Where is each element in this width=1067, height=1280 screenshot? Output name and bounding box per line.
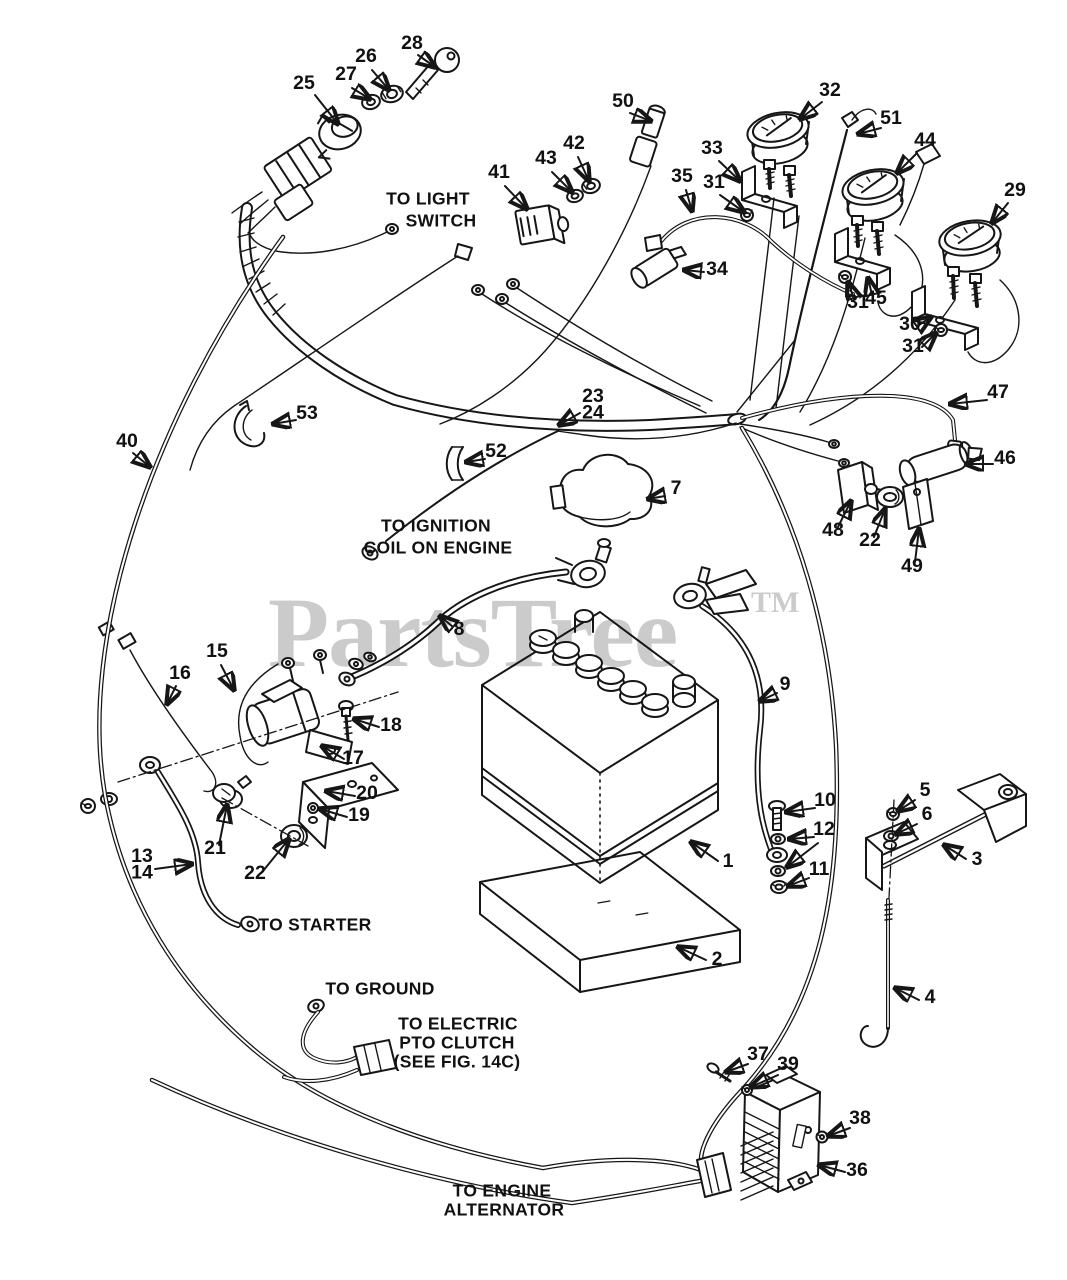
callout-number-19: 19 [348,804,370,826]
callout-arrow-4 [895,988,919,1000]
callout-number-28: 28 [401,32,423,54]
callout-37: 37 [726,1043,769,1072]
callout-number-13-14: 1314 [131,845,153,884]
callout-22b: 22 [244,839,289,884]
callout-number-23-24: 2324 [582,385,604,424]
callout-arrow-44 [897,153,917,173]
callout-3: 3 [944,845,983,870]
callout-number-15: 15 [206,640,228,662]
callout-number-29: 29 [1004,179,1026,201]
callout-9: 9 [760,673,791,701]
callout-number-25: 25 [293,72,315,94]
callout-30: 30 [899,313,931,335]
callout-arrow-36 [819,1165,845,1172]
callout-number-8: 8 [454,618,465,640]
callout-arrow-32 [800,102,822,119]
callout-32: 32 [800,79,841,119]
callout-19: 19 [320,804,370,826]
callout-arrow-1 [691,842,718,861]
callout-arrow-31c [922,333,936,347]
callout-number-39: 39 [777,1053,799,1075]
callout-52: 52 [466,440,507,462]
callout-arrow-27 [352,88,370,99]
callout-48: 48 [822,501,851,541]
callout-26: 26 [355,45,389,90]
callout-31a: 31 [703,171,744,212]
annotation-to-electric-pto-clutch-line-1: TO ELECTRIC [398,1013,518,1034]
callout-number-6: 6 [922,803,933,825]
annotation-to-engine-alternator-line-2: ALTERNATOR [444,1199,565,1220]
callout-arrow-53 [273,420,296,424]
callout-number-52: 52 [485,440,507,462]
callout-number-31a: 31 [703,171,725,193]
callout-number-34: 34 [706,258,728,280]
callout-number-20: 20 [356,782,378,804]
callout-arrow-42 [578,157,589,181]
callout-arrow-40 [133,453,150,467]
callout-number-17: 17 [342,747,364,769]
annotation-to-ignition-coil-line-1: TO IGNITION [381,515,491,536]
callout-10: 10 [786,789,836,812]
callout-20: 20 [326,782,378,804]
callout-number-46: 46 [994,447,1016,469]
callout-arrow-3 [944,845,966,859]
callout-23-24: 2324 [559,385,604,425]
callout-number-16: 16 [169,662,191,684]
callout-arrow-37 [726,1064,748,1072]
callout-arrow-47 [950,400,987,404]
callout-number-11: 11 [809,858,830,880]
callout-number-51: 51 [880,107,902,129]
callout-arrow-51 [858,128,881,134]
callout-number-22a: 22 [859,529,881,551]
callout-arrow-6 [896,824,917,834]
callout-arrow-19 [320,809,347,817]
callout-number-50: 50 [612,90,634,112]
callout-overlay: 2527262841434250325133313534442945313031… [0,0,1067,1280]
callout-31c: 31 [902,333,936,357]
callout-number-4: 4 [925,986,936,1008]
callout-arrow-9 [760,693,777,701]
callout-17: 17 [322,746,364,769]
callout-50: 50 [612,90,651,121]
callout-number-33: 33 [701,137,723,159]
callout-38: 38 [828,1107,871,1136]
callout-number-2: 2 [712,948,723,970]
callout-number-40: 40 [116,430,138,452]
annotation-to-ignition-coil-line-2: COIL ON ENGINE [364,537,513,558]
callout-arrow-11 [788,878,809,886]
callout-number-53: 53 [296,402,318,424]
callout-number-44: 44 [914,129,936,151]
callout-41: 41 [488,161,527,209]
callout-8: 8 [440,616,465,640]
callout-arrow-23-24 [559,413,580,425]
callout-51: 51 [858,107,902,134]
callout-arrow-29 [992,203,1008,223]
callout-arrow-16 [167,686,176,704]
callout-arrow-18 [354,719,379,727]
callout-44: 44 [897,129,936,173]
callout-27: 27 [335,63,370,99]
callout-number-32: 32 [819,79,841,101]
callout-arrow-35 [686,190,692,211]
callout-number-47: 47 [987,381,1009,403]
annotation-to-engine-alternator-line-1: TO ENGINE [453,1180,552,1201]
callout-arrow-31a [720,195,744,212]
annotation-to-electric-pto-clutch-line-3: (SEE FIG. 14C) [394,1051,521,1072]
callout-36: 36 [819,1159,868,1181]
callout-number-31c: 31 [902,335,924,357]
callout-number-9: 9 [780,673,791,695]
callout-arrow-5 [898,800,915,811]
callout-1: 1 [691,842,734,872]
callout-28: 28 [401,32,435,67]
callout-number-12: 12 [813,818,835,840]
callout-arrow-10 [786,808,815,812]
callout-arrow-22b [263,839,289,871]
callout-number-10: 10 [814,789,836,811]
callout-number-26: 26 [355,45,377,67]
callout-number-49: 49 [901,555,923,577]
annotation-to-starter-line-1: TO STARTER [258,914,371,935]
callout-arrow-39 [751,1075,778,1087]
parts-diagram-page: PartsTree TM [0,0,1067,1280]
callout-15: 15 [206,640,234,690]
callout-number-22b: 22 [244,862,266,884]
callout-22a: 22 [859,509,885,551]
callout-arrow-12 [789,837,814,839]
annotation-to-light-switch-line-1: TO LIGHT [386,188,470,209]
callout-number-42: 42 [563,132,585,154]
callout-number-37: 37 [747,1043,769,1065]
callout-number-27: 27 [335,63,357,85]
callout-arrow-28 [418,55,435,67]
callout-number-41: 41 [488,161,510,183]
callout-7: 7 [648,477,681,499]
callout-40: 40 [116,430,150,467]
callout-arrow-15 [221,665,234,690]
callout-number-38: 38 [849,1107,871,1129]
callout-arrow-38 [828,1128,850,1136]
callout-arrow-41 [505,186,527,209]
annotation-to-light-switch-line-2: SWITCH [406,210,477,231]
callout-arrow-50 [630,113,651,121]
callout-2: 2 [678,947,723,970]
callout-47: 47 [950,381,1009,404]
annotation-to-ground-line-1: TO GROUND [325,978,434,999]
callout-number-36: 36 [846,1159,868,1181]
callout-arrow-8 [440,616,453,627]
callout-arrow-26 [372,70,389,90]
callout-number-48: 48 [822,519,844,541]
callout-21: 21 [204,805,227,859]
callout-16: 16 [167,662,191,704]
callout-arrow-13-14 [155,864,192,869]
callout-46: 46 [966,447,1016,469]
callout-arrow-25 [315,95,338,124]
callout-number-31b: 31 [847,291,869,313]
annotation-to-electric-pto-clutch-line-2: PTO CLUTCH [399,1032,514,1053]
callout-53: 53 [273,402,318,424]
callout-number-18: 18 [380,714,402,736]
callout-number-1: 1 [723,850,734,872]
callout-42: 42 [563,132,589,181]
callout-49: 49 [901,529,923,577]
callout-18: 18 [354,714,402,736]
callout-arrow-2 [678,947,706,960]
callout-number-43: 43 [535,147,557,169]
callout-arrow-7 [648,496,665,499]
callout-29: 29 [992,179,1026,223]
callout-number-21: 21 [204,837,226,859]
callout-13-14: 1314 [131,845,192,884]
callout-arrow-17 [322,746,344,759]
callout-4: 4 [895,986,936,1008]
callout-number-7: 7 [671,477,682,499]
callout-arrow-20 [326,791,355,796]
callout-35: 35 [671,165,693,211]
callout-25: 25 [293,72,338,124]
callout-arrow-43 [552,172,572,192]
callout-arrow-52 [466,459,485,462]
callout-number-5: 5 [920,779,931,801]
callout-number-30: 30 [899,313,921,335]
callout-34: 34 [684,258,728,280]
callout-number-3: 3 [972,848,983,870]
callout-arrow-34 [684,270,704,272]
callout-number-35: 35 [671,165,693,187]
